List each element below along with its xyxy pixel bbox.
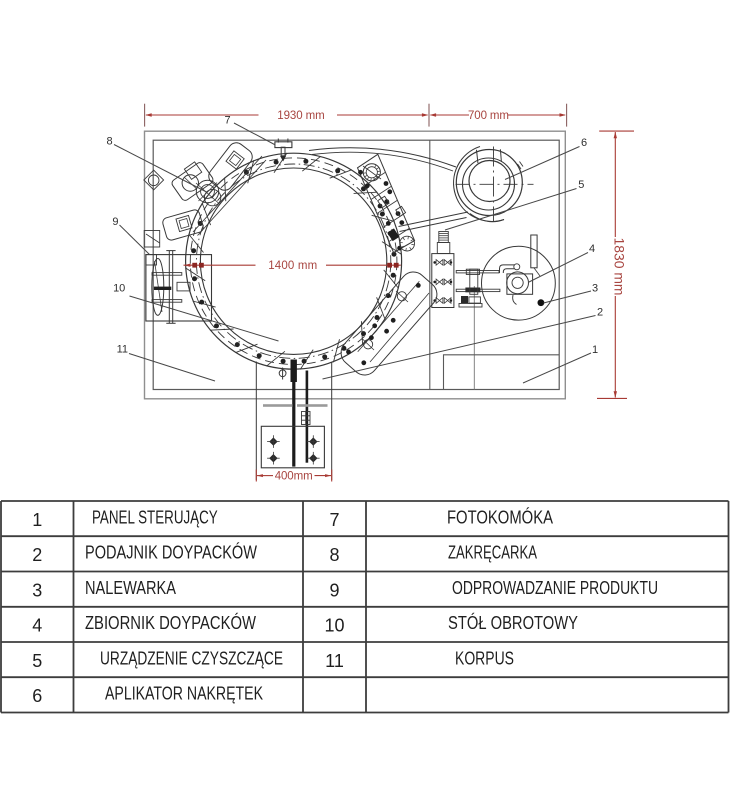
svg-text:1: 1 — [32, 510, 42, 530]
svg-text:3: 3 — [32, 580, 42, 600]
svg-text:4: 4 — [589, 243, 595, 255]
svg-text:APLIKATOR NAKRĘTEK: APLIKATOR NAKRĘTEK — [105, 684, 263, 704]
svg-text:8: 8 — [329, 545, 339, 565]
svg-text:11: 11 — [117, 344, 128, 356]
svg-text:PANEL STERUJĄCY: PANEL STERUJĄCY — [92, 507, 218, 527]
svg-text:NALEWARKA: NALEWARKA — [85, 578, 176, 598]
svg-text:700 mm: 700 mm — [468, 110, 509, 122]
svg-text:6: 6 — [32, 686, 42, 706]
svg-text:9: 9 — [329, 580, 339, 600]
svg-text:6: 6 — [581, 137, 587, 149]
svg-text:1400 mm: 1400 mm — [268, 260, 317, 272]
svg-text:STÓŁ OBROTOWY: STÓŁ OBROTOWY — [448, 612, 578, 633]
svg-text:KORPUS: KORPUS — [455, 648, 514, 668]
svg-text:5: 5 — [32, 651, 42, 671]
svg-text:3: 3 — [592, 283, 598, 295]
svg-text:4: 4 — [32, 616, 42, 636]
svg-text:1: 1 — [592, 344, 598, 356]
svg-text:9: 9 — [112, 216, 118, 228]
svg-text:URZĄDZENIE CZYSZCZĄCE: URZĄDZENIE CZYSZCZĄCE — [100, 648, 283, 668]
svg-text:10: 10 — [113, 283, 125, 295]
svg-text:5: 5 — [578, 179, 584, 191]
svg-text:1830 mm: 1830 mm — [612, 238, 628, 296]
svg-text:8: 8 — [107, 136, 113, 148]
svg-text:400mm: 400mm — [275, 470, 313, 482]
svg-text:7: 7 — [224, 115, 230, 127]
svg-text:10: 10 — [324, 616, 344, 636]
svg-text:ZAKRĘCARKA: ZAKRĘCARKA — [448, 543, 537, 563]
svg-text:1930 mm: 1930 mm — [277, 110, 325, 122]
svg-text:2: 2 — [597, 307, 603, 319]
svg-text:2: 2 — [32, 545, 42, 565]
svg-text:11: 11 — [325, 651, 344, 671]
svg-text:FOTOKOMÓKA: FOTOKOMÓKA — [447, 506, 553, 527]
svg-text:ZBIORNIK DOYPACKÓW: ZBIORNIK DOYPACKÓW — [85, 612, 256, 633]
svg-text:7: 7 — [329, 510, 339, 530]
svg-text:PODAJNIK DOYPACKÓW: PODAJNIK DOYPACKÓW — [85, 542, 257, 563]
svg-text:ODPROWADZANIE PRODUKTU: ODPROWADZANIE PRODUKTU — [452, 578, 658, 598]
